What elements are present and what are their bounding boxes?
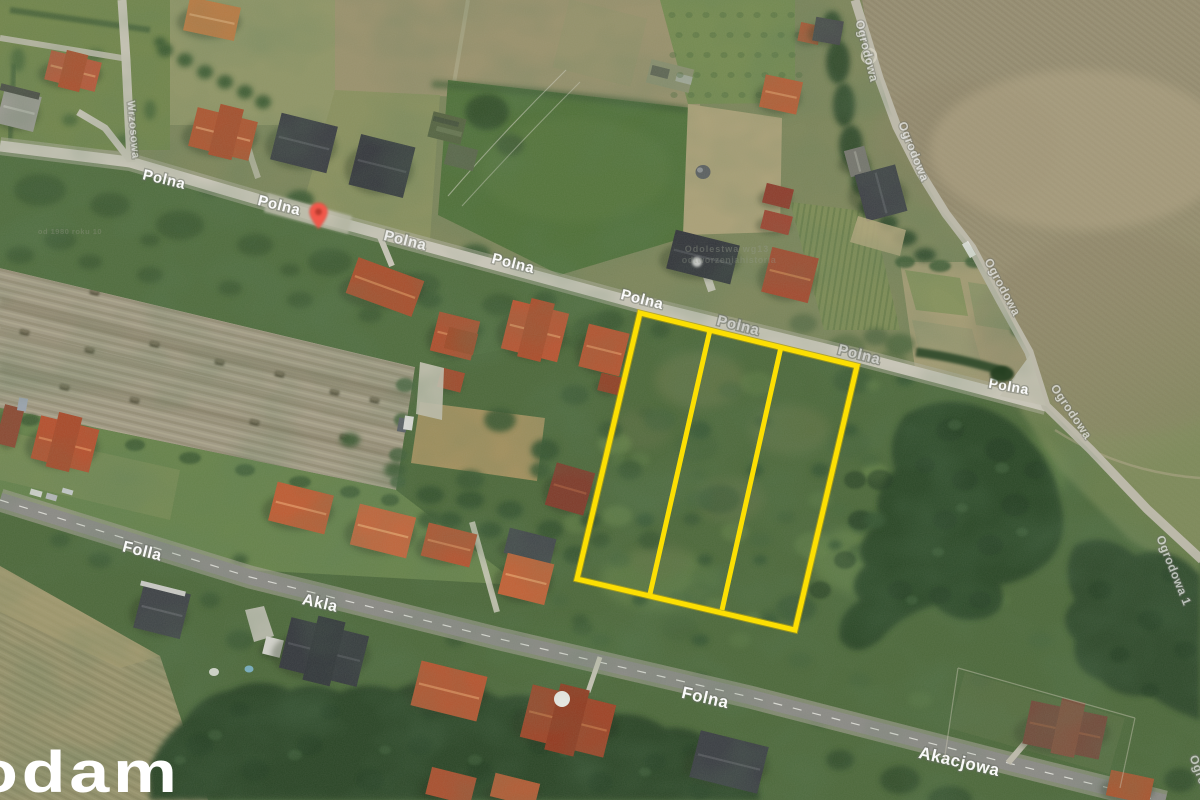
svg-text:od 1980 roku 10: od 1980 roku 10 [38,227,102,236]
svg-text:odam: odam [0,740,181,800]
svg-text:Odolestwa wg13: Odolestwa wg13 [685,244,770,254]
svg-text:odtworzeniahistoria: odtworzeniahistoria [682,255,777,265]
